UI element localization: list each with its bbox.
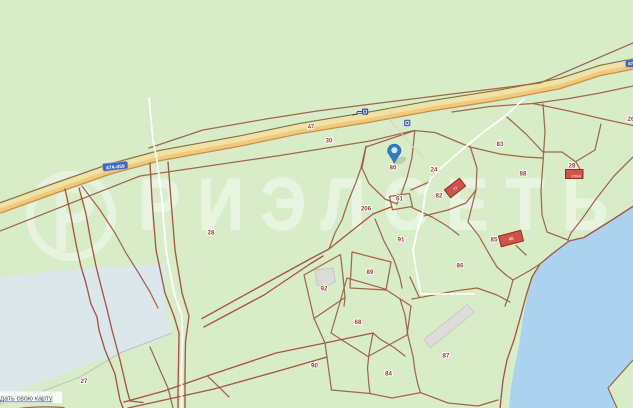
- svg-text:85: 85: [491, 237, 498, 244]
- svg-text:68: 68: [355, 319, 362, 326]
- svg-text:28: 28: [208, 230, 215, 237]
- svg-text:24: 24: [431, 167, 438, 174]
- svg-text:90: 90: [311, 363, 318, 370]
- svg-text:88: 88: [520, 171, 527, 178]
- svg-text:87: 87: [443, 353, 450, 360]
- svg-text:84: 84: [385, 371, 392, 378]
- svg-text:83: 83: [497, 141, 504, 148]
- svg-text:30: 30: [326, 138, 333, 145]
- svg-text:91: 91: [398, 237, 405, 244]
- svg-text:82: 82: [436, 193, 443, 200]
- svg-text:92: 92: [321, 286, 328, 293]
- svg-text:26: 26: [628, 116, 633, 123]
- svg-text:61: 61: [396, 196, 403, 203]
- svg-text:80: 80: [390, 165, 397, 172]
- svg-text:89: 89: [367, 269, 374, 276]
- svg-text:172+6: 172+6: [571, 175, 581, 179]
- svg-text:206: 206: [361, 206, 372, 213]
- svg-text:28: 28: [569, 163, 576, 170]
- svg-text:86: 86: [457, 263, 464, 270]
- svg-text:здать свою карту: здать свою карту: [0, 396, 53, 403]
- svg-text:27: 27: [81, 378, 88, 385]
- svg-text:47: 47: [628, 61, 633, 66]
